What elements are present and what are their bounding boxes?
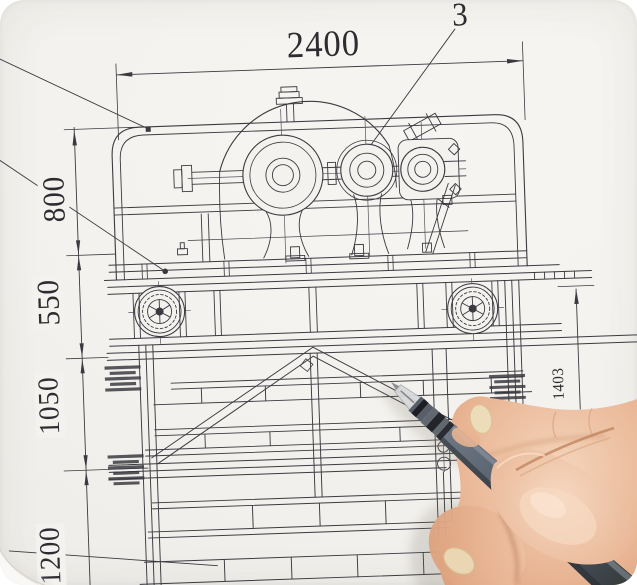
paper-corner [0,536,52,585]
photo-of-technical-drawing: 2400 3 2 800 550 1050 1200 1403 [0,0,637,585]
photo-overlay [0,0,637,585]
